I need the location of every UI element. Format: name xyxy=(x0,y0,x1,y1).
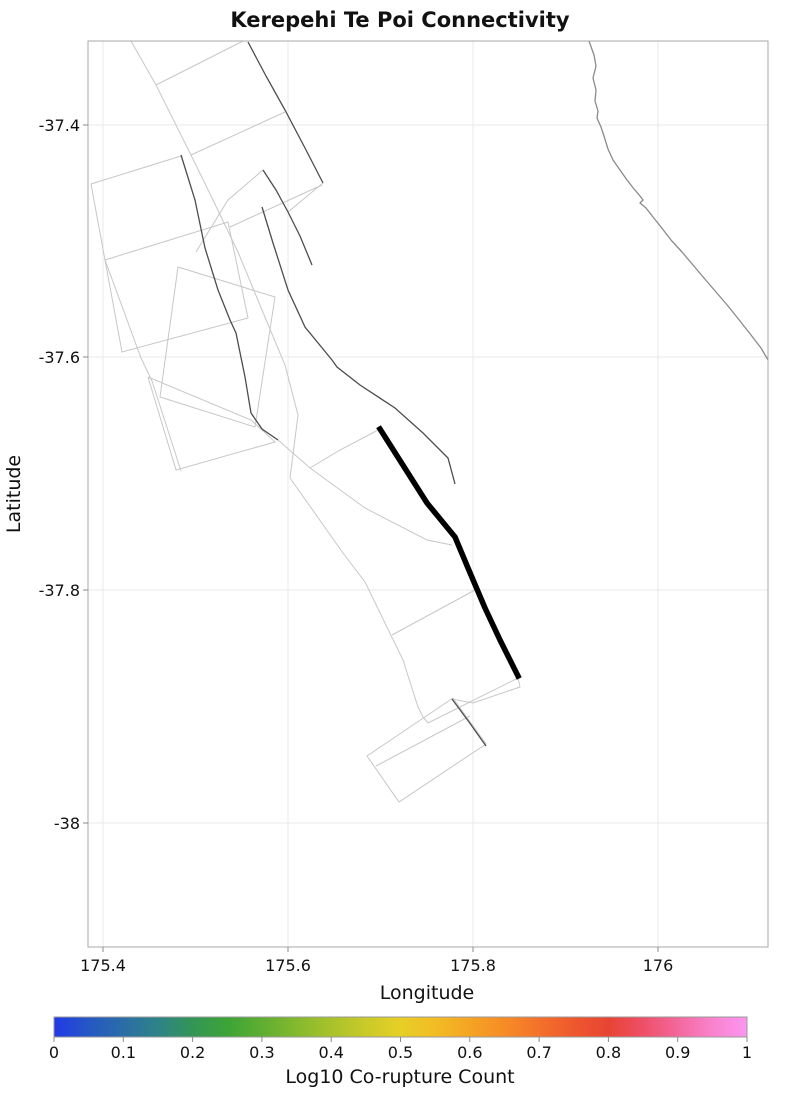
highlighted-fault-trace xyxy=(380,429,518,676)
gridline-layer xyxy=(88,41,768,947)
x-tick-label: 175.6 xyxy=(265,956,311,975)
y-tick-label: -37.8 xyxy=(39,581,80,600)
coastline-layer xyxy=(589,41,768,360)
plot-border xyxy=(88,41,768,947)
y-tick-label: -37.4 xyxy=(39,116,80,135)
colorbar-gradient xyxy=(54,1017,747,1037)
connectivity-figure: 175.4175.6175.8176-37.4-37.6-37.8-38 00.… xyxy=(0,0,800,1096)
colorbar-tick-label: 0.5 xyxy=(388,1043,413,1062)
fault-outline-layer xyxy=(91,41,520,802)
y-tick-label: -38 xyxy=(54,814,80,833)
colorbar-tick-label: 0.6 xyxy=(457,1043,482,1062)
y-tick-label: -37.6 xyxy=(39,348,80,367)
colorbar-tick-label: 0.3 xyxy=(249,1043,274,1062)
x-tick-label: 176 xyxy=(643,956,674,975)
colorbar-tick-label: 1 xyxy=(742,1043,752,1062)
colorbar-tick-label: 0.4 xyxy=(318,1043,343,1062)
colorbar-tick-label: 0.9 xyxy=(665,1043,690,1062)
fault-outline xyxy=(191,112,285,155)
fault-trace-layer xyxy=(181,42,486,746)
x-axis-label: Longitude xyxy=(380,982,475,1004)
fault-outline xyxy=(196,170,263,252)
colorbar-tick-label: 0.1 xyxy=(111,1043,136,1062)
tick-layer: 175.4175.6175.8176-37.4-37.6-37.8-38 xyxy=(39,116,674,975)
chart-title: Kerepehi Te Poi Connectivity xyxy=(230,8,569,32)
fault-trace xyxy=(262,207,455,484)
y-axis-label: Latitude xyxy=(3,455,25,533)
colorbar-label: Log10 Co-rupture Count xyxy=(285,1066,514,1088)
highlighted-fault-layer xyxy=(380,429,518,676)
fault-outline xyxy=(131,41,298,478)
colorbar-tick-label: 0.8 xyxy=(596,1043,621,1062)
fault-outline xyxy=(156,41,243,85)
fault-outline xyxy=(105,222,248,352)
coastline xyxy=(589,41,768,360)
fault-outline xyxy=(367,698,486,802)
colorbar-layer: 00.10.20.30.40.50.60.70.80.91 xyxy=(49,1017,752,1062)
fault-outline xyxy=(310,429,380,468)
x-tick-label: 175.8 xyxy=(450,956,496,975)
fault-outline xyxy=(91,184,181,471)
fault-trace xyxy=(248,42,323,183)
axes-frame-layer xyxy=(88,41,768,947)
fault-outline xyxy=(392,590,475,635)
fault-outline xyxy=(278,440,452,545)
fault-outline xyxy=(160,267,275,427)
fault-outline xyxy=(91,156,181,184)
map-plot: 175.4175.6175.8176-37.4-37.6-37.8-38 00.… xyxy=(0,0,800,1096)
colorbar-tick-label: 0.2 xyxy=(180,1043,205,1062)
colorbar-tick-label: 0.7 xyxy=(526,1043,551,1062)
x-tick-label: 175.4 xyxy=(80,956,126,975)
colorbar-tick-label: 0 xyxy=(49,1043,59,1062)
